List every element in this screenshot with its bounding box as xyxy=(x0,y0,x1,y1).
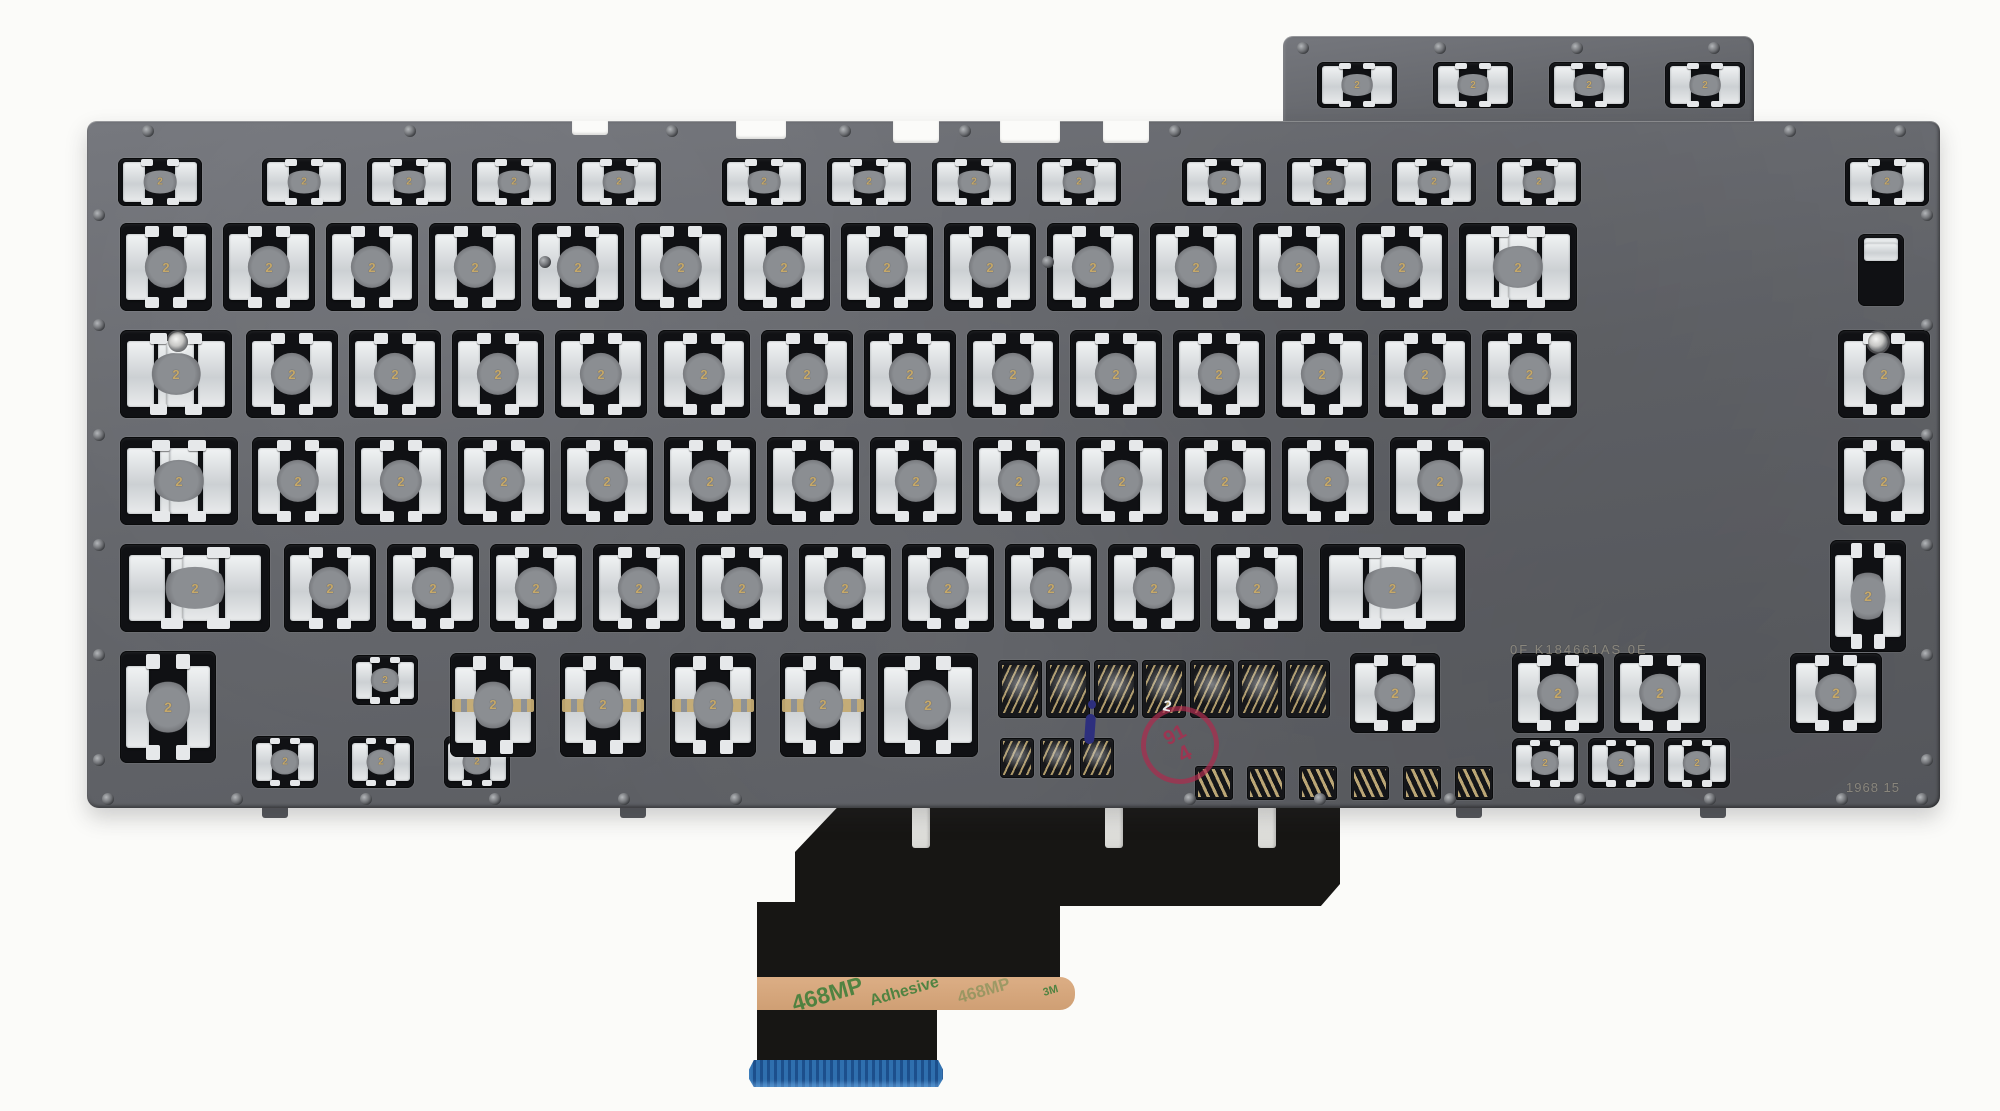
membrane-glyph: 2 xyxy=(819,698,826,713)
membrane-dome: 2 xyxy=(1301,353,1343,395)
gold-trace-window xyxy=(1043,741,1072,775)
membrane-dome: 2 xyxy=(600,170,639,193)
key-switch-site: 2 xyxy=(1664,738,1730,788)
key-switch-site: 2 xyxy=(262,158,346,206)
membrane-glyph: 2 xyxy=(494,366,501,381)
key-switch-site: 2 xyxy=(761,330,853,418)
membrane-dome: 2 xyxy=(1339,74,1376,96)
key-switch-site: 2 xyxy=(696,544,788,632)
membrane-glyph: 2 xyxy=(1192,259,1199,274)
key-switch-site xyxy=(1040,738,1074,778)
membrane-dome: 2 xyxy=(483,460,525,502)
rivet xyxy=(404,125,416,137)
adhesive-strip: 468MP Adhesive 468MP 3M xyxy=(757,977,1075,1010)
membrane-glyph: 2 xyxy=(1884,177,1890,188)
gold-trace-window xyxy=(1050,665,1087,714)
membrane-glyph: 2 xyxy=(500,473,507,488)
key-switch-site xyxy=(1403,766,1441,800)
gold-trace-window xyxy=(1194,665,1231,714)
key-switch-site: 2 xyxy=(1076,437,1168,525)
membrane-dome: 2 xyxy=(1491,246,1545,288)
key-switch-site: 2 xyxy=(120,437,238,525)
membrane-glyph: 2 xyxy=(866,177,872,188)
membrane-dome: 2 xyxy=(1417,460,1463,502)
key-switch-site: 2 xyxy=(284,544,376,632)
rivet xyxy=(618,793,630,805)
membrane-dome: 2 xyxy=(141,170,180,193)
key-switch-site xyxy=(1238,660,1282,718)
membrane-glyph: 2 xyxy=(301,177,307,188)
rivet xyxy=(1784,125,1796,137)
plate-serial-marking: 1968 15 xyxy=(1846,780,1900,795)
key-switch-site: 2 xyxy=(1433,62,1513,108)
membrane-dome: 2 xyxy=(270,750,300,775)
key-switch-site: 2 xyxy=(1047,223,1139,311)
key-switch-site xyxy=(1858,234,1904,306)
membrane-glyph: 2 xyxy=(1253,580,1260,595)
membrane-glyph: 2 xyxy=(391,366,398,381)
blue-ink-mark xyxy=(1084,714,1096,745)
membrane-glyph: 2 xyxy=(1150,580,1157,595)
key-switch-site: 2 xyxy=(1830,540,1906,652)
rivet xyxy=(730,793,742,805)
membrane-dome: 2 xyxy=(1682,751,1712,775)
rivet xyxy=(539,256,551,268)
adhesive-brand-text: 3M xyxy=(1042,983,1060,999)
membrane-glyph: 2 xyxy=(635,580,642,595)
membrane-glyph: 2 xyxy=(1880,473,1887,488)
membrane-dome: 2 xyxy=(618,567,660,609)
key-switch-site: 2 xyxy=(799,544,891,632)
key-switch-site: 2 xyxy=(932,158,1016,206)
key-switch-site: 2 xyxy=(387,544,479,632)
key-switch-site: 2 xyxy=(658,330,750,418)
key-switch-site: 2 xyxy=(1276,330,1368,418)
key-switch-site: 2 xyxy=(252,437,344,525)
membrane-dome: 2 xyxy=(1133,567,1175,609)
membrane-dome: 2 xyxy=(1455,74,1492,96)
membrane-dome: 2 xyxy=(927,567,969,609)
membrane-glyph: 2 xyxy=(1118,473,1125,488)
membrane-dome: 2 xyxy=(745,170,784,193)
membrane-glyph: 2 xyxy=(1326,177,1332,188)
membrane-dome: 2 xyxy=(1359,567,1426,609)
membrane-glyph: 2 xyxy=(1694,758,1700,769)
rivet xyxy=(1434,42,1446,54)
membrane-dome: 2 xyxy=(1381,246,1423,288)
membrane-glyph: 2 xyxy=(1864,588,1872,604)
membrane-glyph: 2 xyxy=(162,259,169,274)
gold-trace-window xyxy=(1098,665,1135,714)
membrane-glyph: 2 xyxy=(164,699,172,715)
key-switch-site: 2 xyxy=(452,330,544,418)
membrane-glyph: 2 xyxy=(1586,79,1592,90)
key-switch-site: 2 xyxy=(1482,330,1577,418)
rivet xyxy=(1042,256,1054,268)
membrane-glyph: 2 xyxy=(191,580,198,595)
membrane-dome: 2 xyxy=(889,353,931,395)
membrane-dome: 2 xyxy=(998,460,1040,502)
key-switch-site: 2 xyxy=(973,437,1065,525)
rivet xyxy=(1894,125,1906,137)
membrane-dome: 2 xyxy=(248,246,290,288)
membrane-dome: 2 xyxy=(786,353,828,395)
key-switch-site: 2 xyxy=(664,437,756,525)
membrane-dome: 2 xyxy=(1310,170,1349,193)
key-switch-site: 2 xyxy=(780,653,866,757)
key-switch-site: 2 xyxy=(1497,158,1581,206)
gold-trace-window xyxy=(1002,665,1039,714)
membrane-glyph: 2 xyxy=(971,177,977,188)
membrane-dome: 2 xyxy=(285,170,324,193)
adhesive-text: 468MP xyxy=(789,977,866,1010)
blue-ink-mark-dot xyxy=(1088,700,1096,709)
rivet xyxy=(93,649,105,661)
rivet xyxy=(1314,793,1326,805)
membrane-dome: 2 xyxy=(583,680,623,730)
membrane-dome: 2 xyxy=(586,460,628,502)
membrane-dome: 2 xyxy=(146,680,190,734)
key-switch-site: 2 xyxy=(429,223,521,311)
ribbon-cable-lower xyxy=(757,1008,937,1064)
key-switch-site: 2 xyxy=(120,544,270,632)
key-switch-site xyxy=(1046,660,1090,718)
membrane-glyph: 2 xyxy=(471,259,478,274)
membrane-dome: 2 xyxy=(1520,170,1559,193)
rivet xyxy=(1169,125,1181,137)
membrane-glyph: 2 xyxy=(288,366,295,381)
membrane-dome: 2 xyxy=(477,353,519,395)
membrane-dome: 2 xyxy=(1030,567,1072,609)
rivet xyxy=(666,125,678,137)
membrane-glyph: 2 xyxy=(282,756,288,767)
membrane-glyph: 2 xyxy=(172,366,179,381)
membrane-dome: 2 xyxy=(969,246,1011,288)
qc-stamp-line2: 4 xyxy=(1174,741,1195,766)
membrane-glyph: 2 xyxy=(474,756,480,767)
membrane-dome: 2 xyxy=(152,460,206,502)
screw-hole xyxy=(168,332,188,352)
membrane-dome: 2 xyxy=(1101,460,1143,502)
membrane-glyph: 2 xyxy=(368,259,375,274)
membrane-dome: 2 xyxy=(412,567,454,609)
membrane-dome: 2 xyxy=(370,668,400,692)
key-switch-site: 2 xyxy=(450,653,536,757)
membrane-dome: 2 xyxy=(495,170,534,193)
membrane-dome: 2 xyxy=(145,246,187,288)
key-switch-site: 2 xyxy=(1037,158,1121,206)
key-switch-site: 2 xyxy=(561,437,653,525)
membrane-dome: 2 xyxy=(660,246,702,288)
membrane-glyph: 2 xyxy=(489,698,496,713)
membrane-glyph: 2 xyxy=(803,366,810,381)
gold-trace-window xyxy=(1406,769,1438,798)
key-switch-site: 2 xyxy=(348,736,414,788)
membrane-glyph: 2 xyxy=(1536,177,1542,188)
membrane-dome: 2 xyxy=(1236,567,1278,609)
keyboard-backplate-photo: 468MP Adhesive 468MP 3M 0F K184661AS 0E … xyxy=(0,0,2000,1111)
membrane-glyph: 2 xyxy=(1295,259,1302,274)
key-switch-site: 2 xyxy=(120,223,212,311)
membrane-glyph: 2 xyxy=(700,366,707,381)
gold-trace-window xyxy=(1250,769,1282,798)
membrane-glyph: 2 xyxy=(780,259,787,274)
membrane-dome: 2 xyxy=(1095,353,1137,395)
key-switch-site: 2 xyxy=(1287,158,1371,206)
plate-foot-post xyxy=(1105,806,1123,848)
key-switch-site: 2 xyxy=(1665,62,1745,108)
rivet xyxy=(1916,793,1928,805)
membrane-dome: 2 xyxy=(309,567,351,609)
membrane-glyph: 2 xyxy=(986,259,993,274)
key-switch-site xyxy=(1094,660,1138,718)
adhesive-text: 468MP xyxy=(955,977,1012,1008)
membrane-glyph: 2 xyxy=(677,259,684,274)
adhesive-text: Adhesive xyxy=(868,977,941,1010)
membrane-glyph: 2 xyxy=(1618,758,1624,769)
membrane-glyph: 2 xyxy=(1009,366,1016,381)
membrane-glyph: 2 xyxy=(1076,177,1082,188)
gold-trace-window xyxy=(1290,665,1327,714)
key-switch-site: 2 xyxy=(1614,653,1706,733)
key-switch-site: 2 xyxy=(490,544,582,632)
plate-edge-notch xyxy=(1103,121,1149,143)
membrane-glyph: 2 xyxy=(1542,758,1548,769)
membrane-glyph: 2 xyxy=(1389,580,1396,595)
key-switch-site: 2 xyxy=(1350,653,1440,733)
membrane-dome: 2 xyxy=(1571,74,1608,96)
key-switch-site: 2 xyxy=(870,437,962,525)
membrane-glyph: 2 xyxy=(326,580,333,595)
key-switch-site: 2 xyxy=(1320,544,1465,632)
membrane-dome: 2 xyxy=(380,460,422,502)
key-switch-site: 2 xyxy=(555,330,647,418)
key-switch-site: 2 xyxy=(1182,158,1266,206)
membrane-glyph: 2 xyxy=(616,177,622,188)
membrane-glyph: 2 xyxy=(1089,259,1096,274)
membrane-glyph: 2 xyxy=(406,177,412,188)
rivet xyxy=(1708,42,1720,54)
key-switch-site: 2 xyxy=(722,158,806,206)
ribbon-connector xyxy=(749,1060,943,1087)
membrane-dome: 2 xyxy=(557,246,599,288)
rivet xyxy=(93,319,105,331)
membrane-glyph: 2 xyxy=(429,580,436,595)
membrane-dome: 2 xyxy=(1530,751,1560,775)
rivet xyxy=(1921,319,1933,331)
key-switch-site: 2 xyxy=(352,655,418,705)
key-switch-site: 2 xyxy=(738,223,830,311)
membrane-glyph: 2 xyxy=(1215,366,1222,381)
key-switch-site: 2 xyxy=(252,736,318,788)
membrane-dome: 2 xyxy=(161,567,230,609)
membrane-glyph: 2 xyxy=(1554,685,1562,701)
membrane-dome: 2 xyxy=(1060,170,1099,193)
plate-foot-post xyxy=(912,806,930,848)
membrane-glyph: 2 xyxy=(809,473,816,488)
membrane-dome: 2 xyxy=(150,353,202,395)
membrane-dome: 2 xyxy=(351,246,393,288)
membrane-glyph: 2 xyxy=(1526,366,1533,381)
membrane-glyph: 2 xyxy=(944,580,951,595)
rivet xyxy=(360,793,372,805)
membrane-glyph: 2 xyxy=(157,177,163,188)
key-switch-site: 2 xyxy=(1179,437,1271,525)
membrane-dome: 2 xyxy=(866,246,908,288)
key-switch-site: 2 xyxy=(1150,223,1242,311)
membrane-dome: 2 xyxy=(1863,460,1905,502)
rivet xyxy=(93,539,105,551)
membrane-glyph: 2 xyxy=(1015,473,1022,488)
key-switch-site xyxy=(1080,738,1114,778)
membrane-glyph: 2 xyxy=(397,473,404,488)
key-switch-site: 2 xyxy=(1390,437,1490,525)
membrane-glyph: 2 xyxy=(709,698,716,713)
membrane-glyph: 2 xyxy=(1436,473,1443,488)
plate-edge-notch xyxy=(572,121,608,135)
rivet xyxy=(142,125,154,137)
membrane-glyph: 2 xyxy=(1112,366,1119,381)
rivet xyxy=(1574,793,1586,805)
rivet xyxy=(93,754,105,766)
membrane-glyph: 2 xyxy=(511,177,517,188)
membrane-glyph: 2 xyxy=(294,473,301,488)
membrane-dome: 2 xyxy=(1374,674,1415,712)
membrane-dome: 2 xyxy=(277,460,319,502)
membrane-glyph: 2 xyxy=(924,697,932,713)
membrane-dome: 2 xyxy=(271,353,313,395)
membrane-dome: 2 xyxy=(905,680,951,730)
membrane-glyph: 2 xyxy=(597,366,604,381)
key-switch-site: 2 xyxy=(458,437,550,525)
ribbon-cable-mid xyxy=(757,902,1060,980)
key-switch-site: 2 xyxy=(1512,738,1578,788)
membrane-dome: 2 xyxy=(454,246,496,288)
key-switch-site: 2 xyxy=(878,653,978,757)
membrane-dome: 2 xyxy=(955,170,994,193)
membrane-dome: 2 xyxy=(366,750,396,775)
membrane-glyph: 2 xyxy=(1324,473,1331,488)
membrane-glyph: 2 xyxy=(1221,177,1227,188)
key-switch-site: 2 xyxy=(1838,437,1930,525)
rivet xyxy=(489,793,501,805)
key-switch-site: 2 xyxy=(355,437,447,525)
key-switch-site: 2 xyxy=(560,653,646,757)
key-switch-site xyxy=(998,660,1042,718)
membrane-dome: 2 xyxy=(1863,353,1905,395)
membrane-dome: 2 xyxy=(689,460,731,502)
plate-edge-notch xyxy=(893,121,939,143)
membrane-dome: 2 xyxy=(1687,74,1724,96)
membrane-dome: 2 xyxy=(1815,674,1857,712)
membrane-dome: 2 xyxy=(1204,460,1246,502)
rivet xyxy=(1921,539,1933,551)
key-switch-site: 2 xyxy=(670,653,756,757)
rivet xyxy=(1921,754,1933,766)
membrane-glyph: 2 xyxy=(574,259,581,274)
key-switch-site: 2 xyxy=(1173,330,1265,418)
rivet xyxy=(102,793,114,805)
membrane-dome: 2 xyxy=(693,680,733,730)
key-switch-site: 2 xyxy=(1392,158,1476,206)
rivet xyxy=(1571,42,1583,54)
membrane-glyph: 2 xyxy=(1421,366,1428,381)
key-switch-site: 2 xyxy=(1549,62,1629,108)
key-switch-site: 2 xyxy=(1459,223,1577,311)
key-switch-site: 2 xyxy=(1253,223,1345,311)
rivet xyxy=(1921,209,1933,221)
key-switch-site: 2 xyxy=(246,330,338,418)
membrane-dome: 2 xyxy=(374,353,416,395)
membrane-dome: 2 xyxy=(1278,246,1320,288)
rivet xyxy=(1444,793,1456,805)
membrane-dome: 2 xyxy=(803,680,843,730)
membrane-dome: 2 xyxy=(792,460,834,502)
key-switch-site: 2 xyxy=(349,330,441,418)
key-switch-site: 2 xyxy=(1282,437,1374,525)
membrane-dome: 2 xyxy=(721,567,763,609)
key-switch-site xyxy=(1455,766,1493,800)
key-switch-site: 2 xyxy=(1317,62,1397,108)
membrane-dome: 2 xyxy=(895,460,937,502)
membrane-glyph: 2 xyxy=(1318,366,1325,381)
membrane-dome: 2 xyxy=(1868,170,1907,193)
membrane-dome: 2 xyxy=(1307,460,1349,502)
membrane-dome: 2 xyxy=(992,353,1034,395)
key-switch-site: 2 xyxy=(1588,738,1654,788)
membrane-glyph: 2 xyxy=(599,698,606,713)
key-switch-site: 2 xyxy=(577,158,661,206)
rivet xyxy=(839,125,851,137)
key-switch-site: 2 xyxy=(767,437,859,525)
membrane-dome: 2 xyxy=(683,353,725,395)
plate-id-marking: 0F K184661AS 0E xyxy=(1510,642,1648,657)
membrane-glyph: 2 xyxy=(1431,177,1437,188)
key-switch-site: 2 xyxy=(1108,544,1200,632)
membrane-glyph: 2 xyxy=(761,177,767,188)
membrane-dome: 2 xyxy=(1205,170,1244,193)
membrane-glyph: 2 xyxy=(1047,580,1054,595)
key-switch-site xyxy=(1000,738,1034,778)
membrane-dome: 2 xyxy=(1072,246,1114,288)
key-switch-site: 2 xyxy=(118,158,202,206)
key-switch-site: 2 xyxy=(1356,223,1448,311)
membrane-dome: 2 xyxy=(1508,353,1552,395)
membrane-dome: 2 xyxy=(580,353,622,395)
key-switch-site: 2 xyxy=(944,223,1036,311)
membrane-dome: 2 xyxy=(824,567,866,609)
rivet xyxy=(959,125,971,137)
screw-hole xyxy=(1868,332,1888,352)
key-switch-site: 2 xyxy=(841,223,933,311)
membrane-glyph: 2 xyxy=(841,580,848,595)
plate-edge-notch xyxy=(736,121,786,139)
membrane-dome: 2 xyxy=(763,246,805,288)
membrane-dome: 2 xyxy=(1415,170,1454,193)
membrane-glyph: 2 xyxy=(883,259,890,274)
key-switch-site: 2 xyxy=(902,544,994,632)
key-switch-site xyxy=(1247,766,1285,800)
membrane-dome: 2 xyxy=(390,170,429,193)
gold-trace-window xyxy=(1003,741,1032,775)
membrane-dome: 2 xyxy=(1606,751,1636,775)
membrane-glyph: 2 xyxy=(1656,685,1664,701)
rivet xyxy=(1297,42,1309,54)
rivet xyxy=(1704,793,1716,805)
membrane-dome: 2 xyxy=(1404,353,1446,395)
membrane-glyph: 2 xyxy=(1880,366,1887,381)
rivet xyxy=(1184,793,1196,805)
